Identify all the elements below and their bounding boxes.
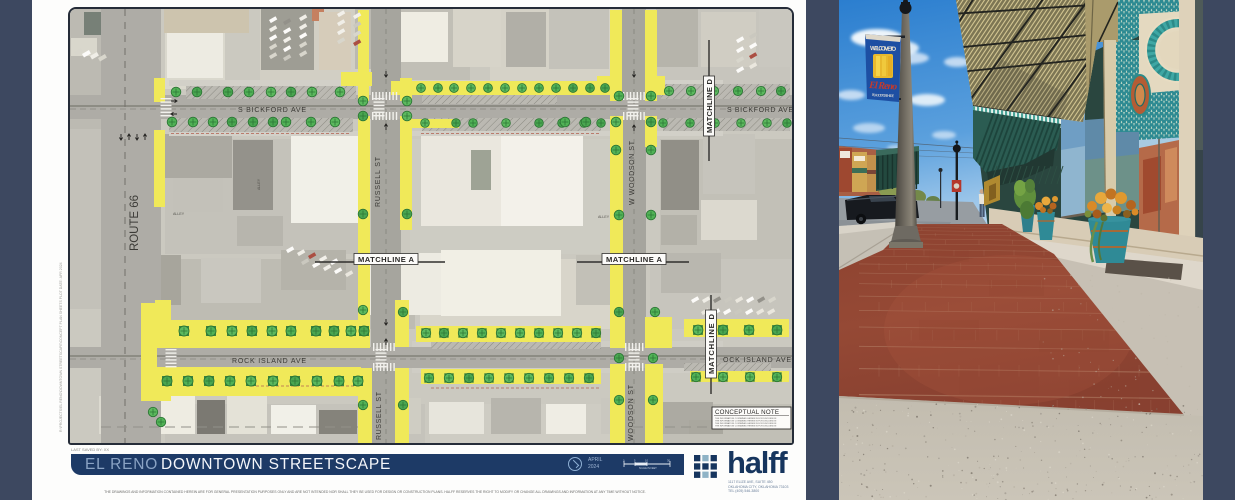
svg-text:El Reno: El Reno bbox=[868, 80, 898, 93]
svg-text:0: 0 bbox=[623, 459, 625, 462]
svg-text:10: 10 bbox=[645, 459, 648, 462]
svg-text:WELCOME TO: WELCOME TO bbox=[870, 46, 897, 53]
svg-text:5: 5 bbox=[634, 459, 636, 462]
svg-text:SCALE IN FEET: SCALE IN FEET bbox=[639, 466, 657, 468]
